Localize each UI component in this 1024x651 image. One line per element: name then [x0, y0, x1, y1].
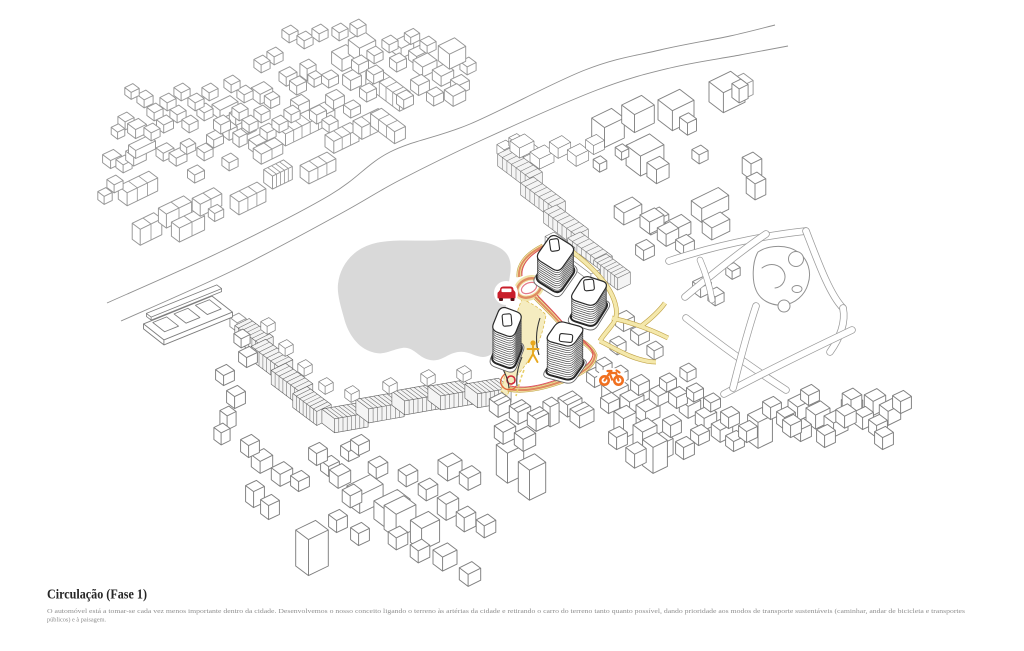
- svg-text:O automóvel está a tomar-se ca: O automóvel está a tomar-se cada vez men…: [47, 608, 966, 615]
- svg-text:públicos) e à paisagem.: públicos) e à paisagem.: [47, 617, 107, 624]
- svg-text:Circulação (Fase 1): Circulação (Fase 1): [47, 588, 147, 603]
